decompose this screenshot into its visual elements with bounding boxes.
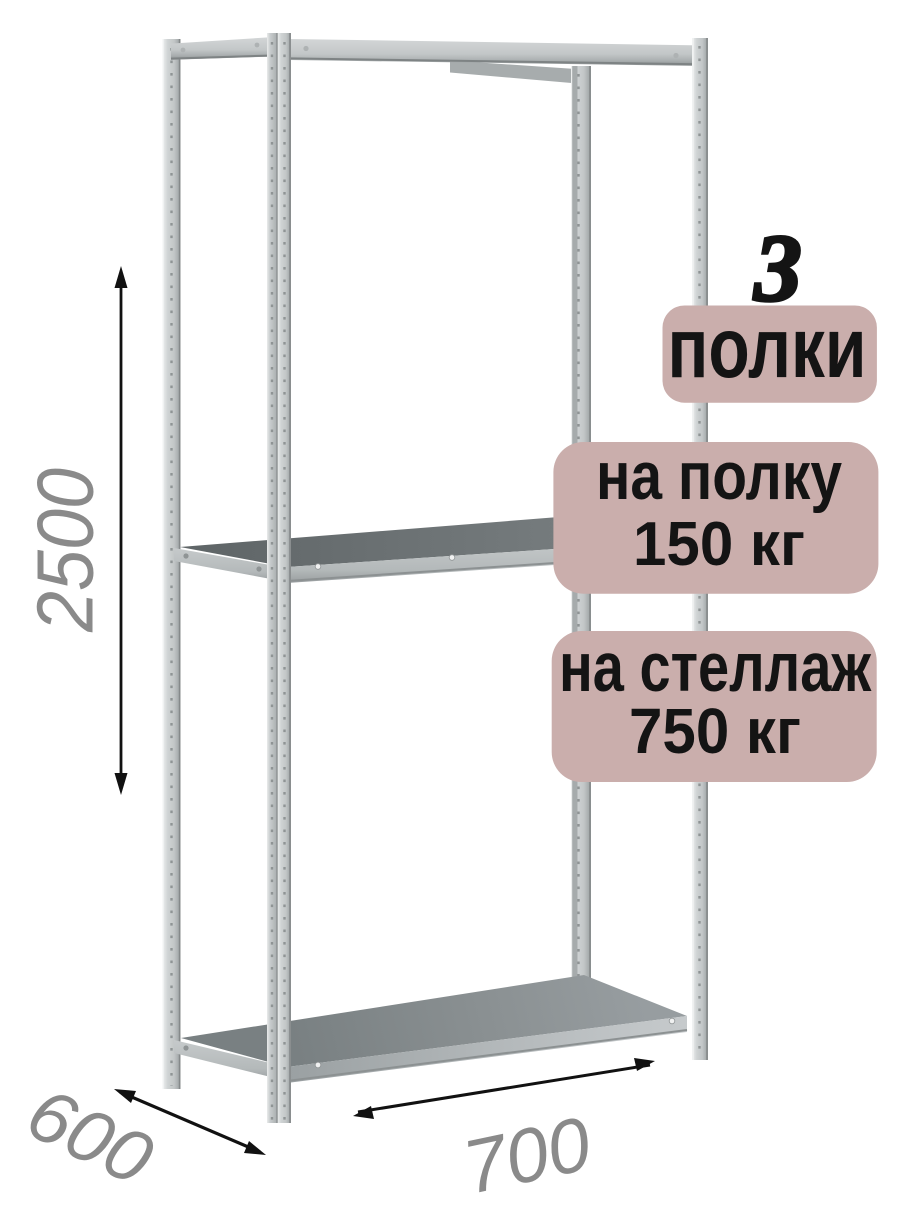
svg-text:150 кг: 150 кг — [633, 510, 805, 579]
svg-text:750 кг: 750 кг — [629, 695, 801, 767]
svg-text:полки: полки — [668, 301, 867, 396]
svg-text:2500: 2500 — [21, 468, 110, 633]
svg-text:на полку: на полку — [596, 438, 842, 514]
